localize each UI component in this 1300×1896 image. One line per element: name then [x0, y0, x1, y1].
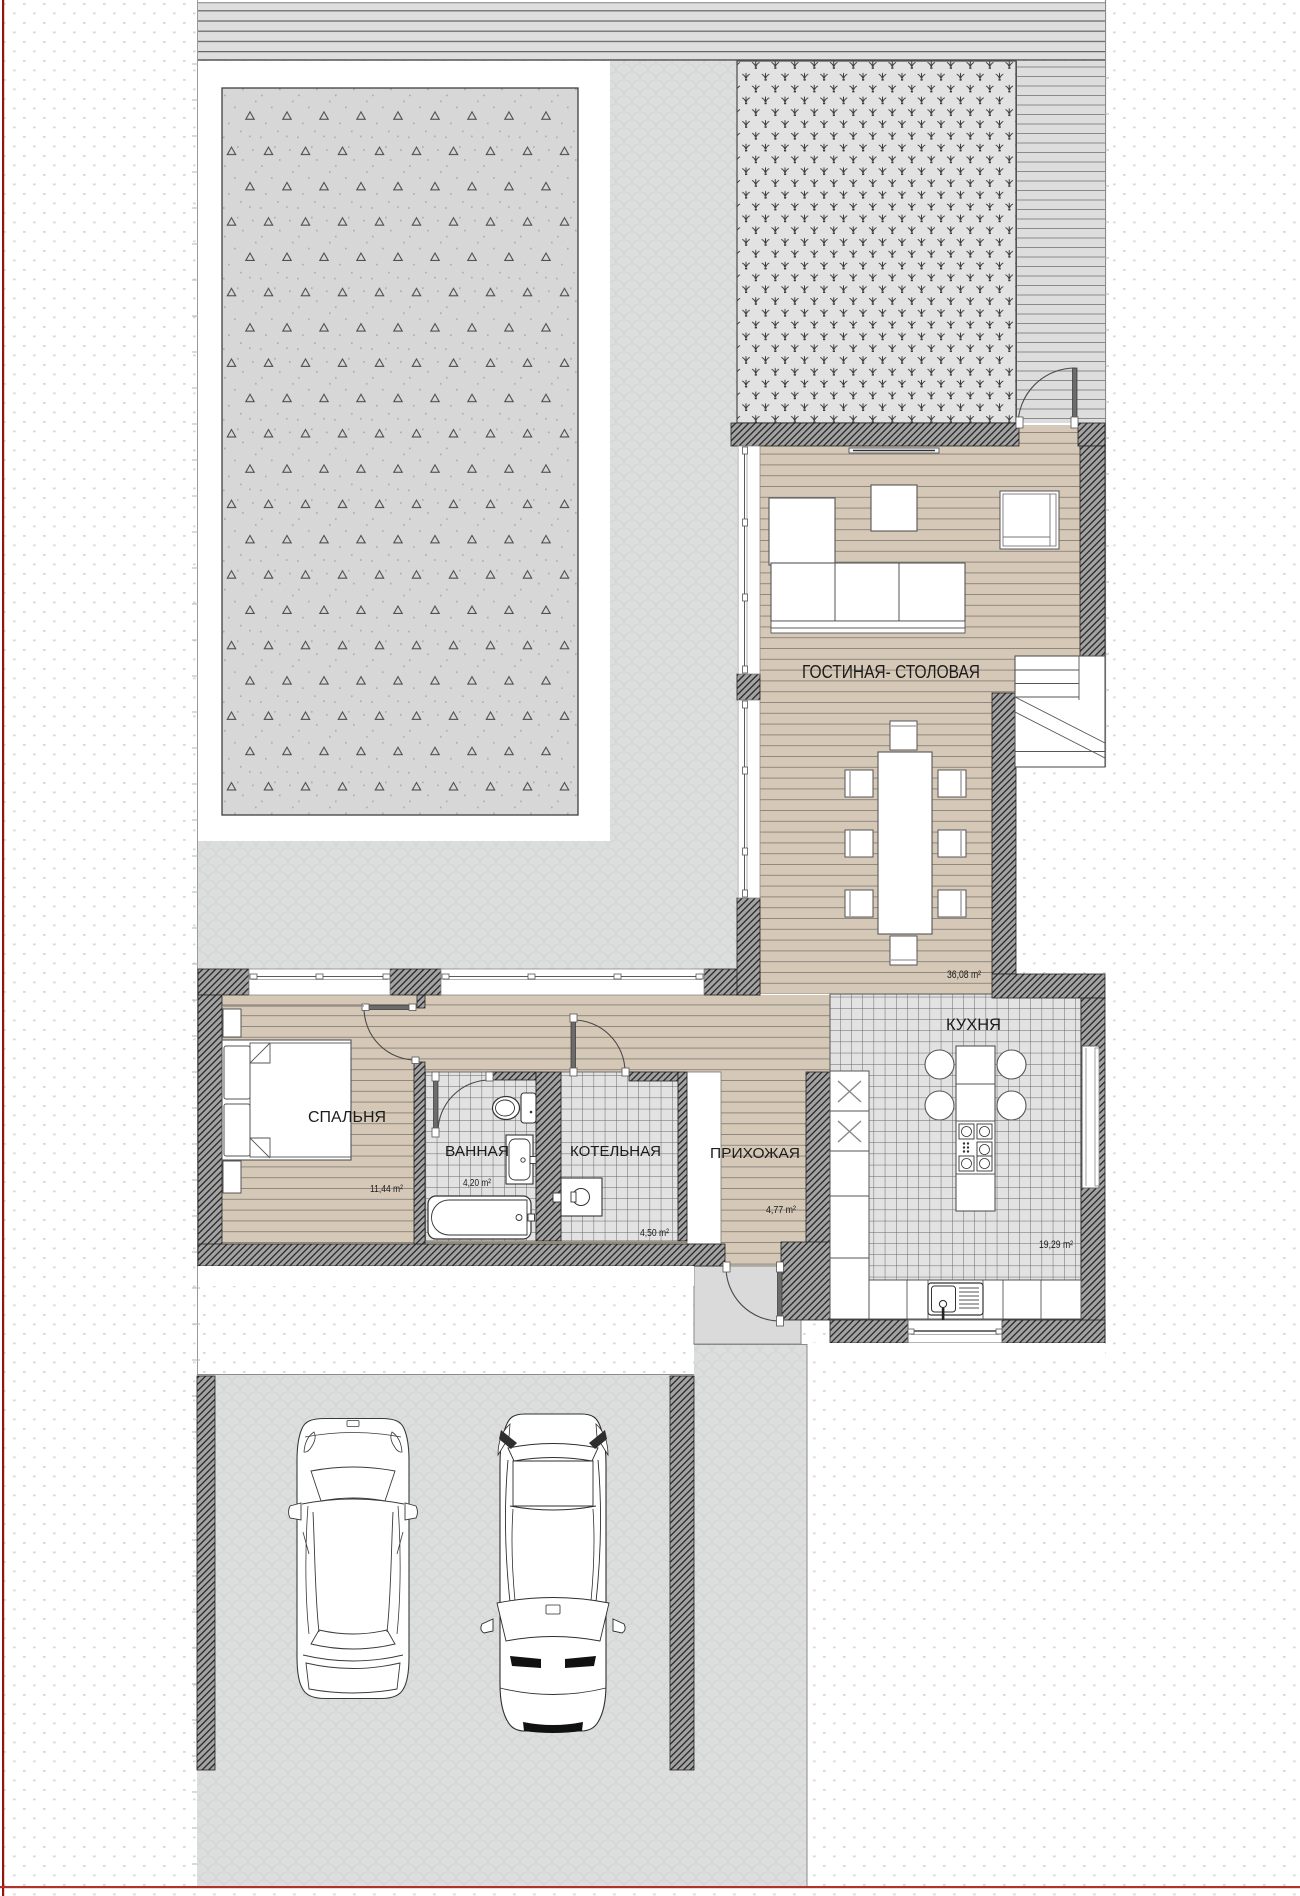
svg-text:ПРИХОЖАЯ: ПРИХОЖАЯ: [710, 1146, 800, 1162]
svg-text:КОТЕЛЬНАЯ: КОТЕЛЬНАЯ: [570, 1144, 661, 1160]
svg-text:КУХНЯ: КУХНЯ: [946, 1015, 1001, 1034]
svg-text:ВАННАЯ: ВАННАЯ: [445, 1144, 509, 1160]
svg-text:11,44 m²: 11,44 m²: [370, 1183, 403, 1195]
svg-text:4,50 m²: 4,50 m²: [640, 1228, 670, 1239]
svg-text:4,77 m²: 4,77 m²: [766, 1205, 797, 1216]
svg-text:36,08 m²: 36,08 m²: [947, 969, 981, 981]
svg-text:4,20 m²: 4,20 m²: [463, 1178, 492, 1189]
svg-text:ГОСТИНАЯ- СТОЛОВАЯ: ГОСТИНАЯ- СТОЛОВАЯ: [802, 662, 980, 682]
svg-text:СПАЛЬНЯ: СПАЛЬНЯ: [308, 1109, 386, 1126]
svg-text:19,29 m²: 19,29 m²: [1039, 1239, 1073, 1251]
